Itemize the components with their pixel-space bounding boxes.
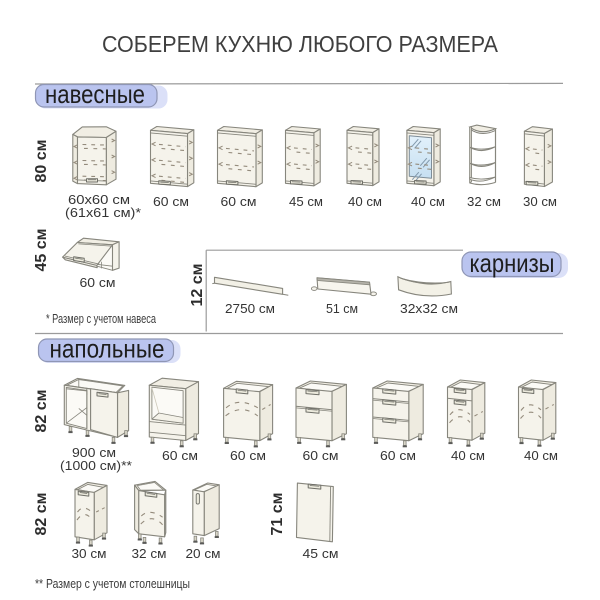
svg-text:2750 см: 2750 см — [225, 301, 275, 316]
svg-text:20 см: 20 см — [186, 546, 221, 561]
svg-text:82 см: 82 см — [33, 390, 50, 433]
svg-text:карнизы: карнизы — [470, 248, 555, 278]
svg-text:60 см: 60 см — [303, 448, 339, 463]
svg-text:71 см: 71 см — [269, 493, 286, 536]
svg-text:** Размер с учетом столешницы: ** Размер с учетом столешницы — [35, 577, 190, 591]
svg-text:32 см: 32 см — [132, 546, 167, 561]
svg-text:32х32 см: 32х32 см — [400, 301, 458, 316]
svg-text:навесные: навесные — [45, 79, 145, 109]
svg-text:(1000 см)**: (1000 см)** — [60, 458, 132, 473]
svg-text:(61х61 см)*: (61х61 см)* — [65, 205, 141, 220]
svg-text:напольные: напольные — [50, 334, 165, 364]
svg-text:45 см: 45 см — [289, 194, 323, 209]
svg-text:60 см: 60 см — [153, 194, 189, 209]
svg-text:32 см: 32 см — [467, 194, 501, 209]
svg-text:60 см: 60 см — [162, 448, 198, 463]
svg-text:* Размер с учетом навеса: * Размер с учетом навеса — [46, 312, 156, 326]
svg-text:45 см: 45 см — [33, 229, 50, 272]
svg-text:40 см: 40 см — [348, 194, 382, 209]
svg-text:51 см: 51 см — [326, 301, 358, 316]
svg-text:45 см: 45 см — [303, 546, 339, 561]
svg-text:30 см: 30 см — [72, 546, 107, 561]
svg-text:30 см: 30 см — [523, 194, 557, 209]
svg-text:60 см: 60 см — [80, 275, 116, 290]
svg-text:40 см: 40 см — [524, 448, 558, 463]
svg-text:СОБЕРЕМ КУХНЮ ЛЮБОГО РАЗМЕРА: СОБЕРЕМ КУХНЮ ЛЮБОГО РАЗМЕРА — [102, 31, 499, 57]
svg-text:60 см: 60 см — [380, 448, 416, 463]
svg-text:80 см: 80 см — [33, 140, 50, 183]
svg-text:40 см: 40 см — [451, 448, 485, 463]
svg-text:12 см: 12 см — [189, 264, 206, 307]
svg-text:60 см: 60 см — [221, 194, 257, 209]
svg-text:60 см: 60 см — [230, 448, 266, 463]
svg-text:82 см: 82 см — [33, 493, 50, 536]
svg-text:40 см: 40 см — [411, 194, 445, 209]
